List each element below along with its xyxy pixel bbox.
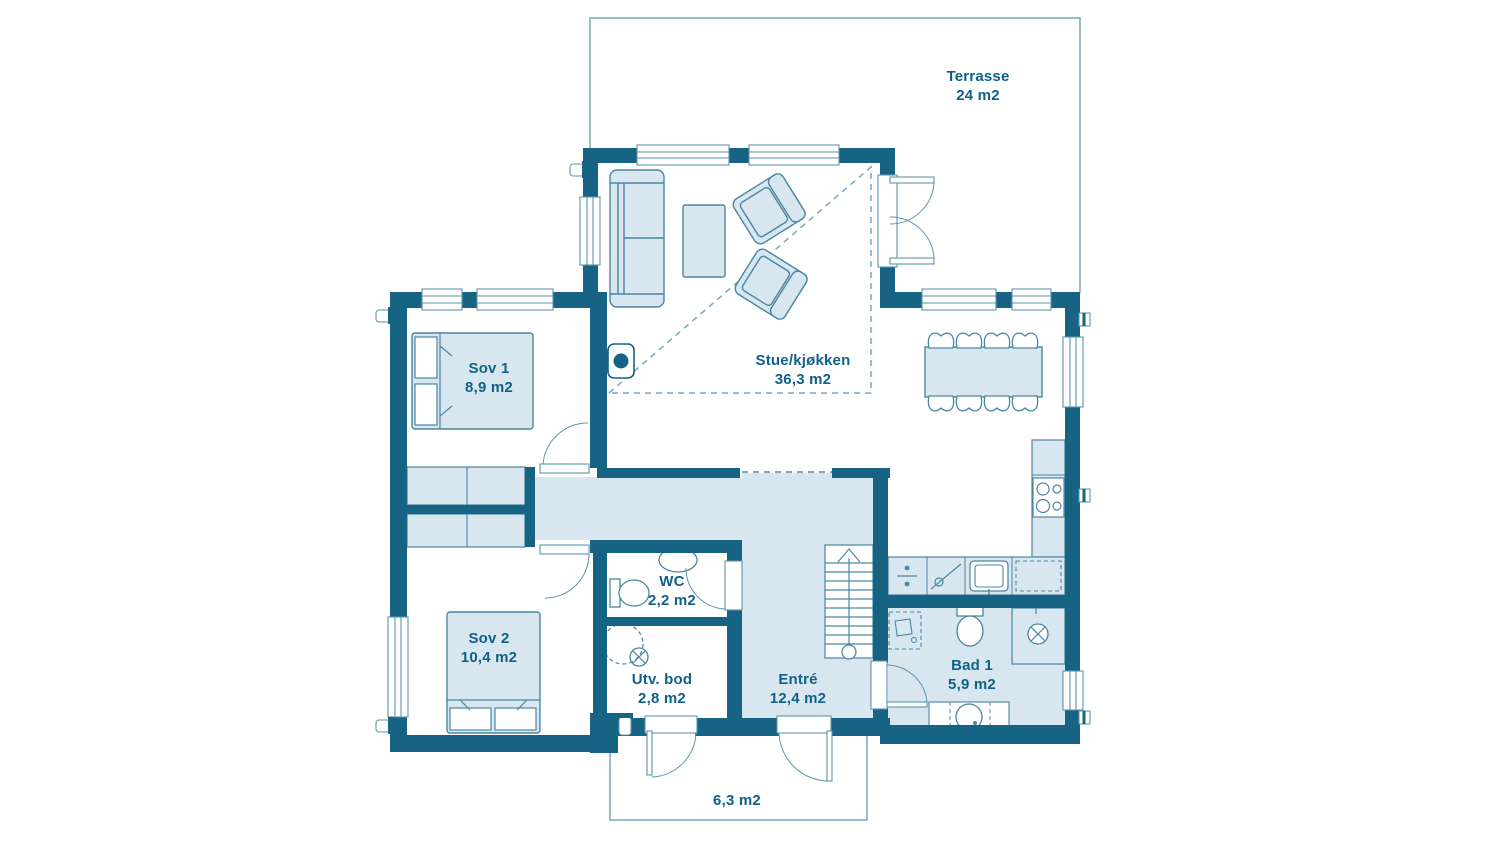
room-name: Sov 2 — [461, 629, 517, 648]
room-name: WC — [648, 572, 696, 591]
room-area: 36,3 m2 — [756, 370, 851, 389]
window — [1063, 337, 1083, 407]
wall-lamp-icon — [617, 713, 633, 735]
hallway-floor — [535, 477, 742, 540]
window — [580, 197, 600, 265]
room-name: Bad 1 — [948, 656, 996, 675]
sofa — [610, 170, 664, 307]
room-area: 8,9 m2 — [465, 378, 513, 397]
room-area: 10,4 m2 — [461, 648, 517, 667]
bathroom-toilet-icon — [957, 607, 983, 646]
room-label-entre: Entré 12,4 m2 — [770, 670, 826, 708]
room-area: 24 m2 — [946, 86, 1009, 105]
room-area: 6,3 m2 — [713, 791, 761, 810]
armchair-1 — [731, 172, 808, 247]
wall-lamp-icon — [376, 307, 394, 324]
stairs — [825, 545, 873, 659]
floor-plan-page: Terrasse 24 m2 Stue/kjøkken 36,3 m2 Sov … — [0, 0, 1500, 844]
wc-toilet-icon — [610, 579, 649, 607]
window — [922, 289, 996, 310]
window — [1012, 289, 1051, 310]
room-label-bad1: Bad 1 5,9 m2 — [948, 656, 996, 694]
door-sov1 — [540, 423, 589, 473]
vent-cap-icon — [1079, 313, 1090, 326]
wall-lamp-icon — [570, 161, 588, 178]
coffee-table — [683, 205, 725, 277]
door-bod-exterior — [645, 716, 697, 777]
patio-double-door — [878, 175, 934, 267]
room-label-stue-kjokken: Stue/kjøkken 36,3 m2 — [756, 351, 851, 389]
room-name: Sov 1 — [465, 359, 513, 378]
floor-plan-drawing — [0, 0, 1500, 844]
armchair-2 — [733, 247, 810, 322]
room-area: 12,4 m2 — [770, 689, 826, 708]
room-label-terrasse: Terrasse 24 m2 — [946, 67, 1009, 105]
water-heater-icon — [603, 624, 648, 666]
window — [749, 145, 839, 165]
room-label-utv-bod: Utv. bod 2,8 m2 — [632, 670, 692, 708]
room-label-porch: 6,3 m2 — [713, 791, 761, 810]
room-area: 5,9 m2 — [948, 675, 996, 694]
vent-cap-icon — [1079, 489, 1090, 502]
room-name: Stue/kjøkken — [756, 351, 851, 370]
wood-stove-icon — [604, 344, 634, 378]
window — [477, 289, 553, 310]
door-entry-exterior — [777, 716, 832, 781]
vent-cap-icon — [1079, 711, 1090, 724]
room-label-sov1: Sov 1 8,9 m2 — [465, 359, 513, 397]
room-label-wc: WC 2,2 m2 — [648, 572, 696, 610]
window — [388, 617, 408, 717]
wall-lamp-icon — [376, 717, 394, 734]
room-name: Utv. bod — [632, 670, 692, 689]
cooktop-icon — [1033, 478, 1064, 517]
window — [637, 145, 729, 165]
room-area: 2,2 m2 — [648, 591, 696, 610]
shower-icon — [1012, 608, 1065, 664]
door-sov2 — [540, 545, 589, 598]
dining-table — [925, 347, 1042, 397]
room-name: Terrasse — [946, 67, 1009, 86]
window — [422, 289, 462, 310]
room-name: Entré — [770, 670, 826, 689]
room-area: 2,8 m2 — [632, 689, 692, 708]
room-label-sov2: Sov 2 10,4 m2 — [461, 629, 517, 667]
window — [1063, 671, 1083, 710]
